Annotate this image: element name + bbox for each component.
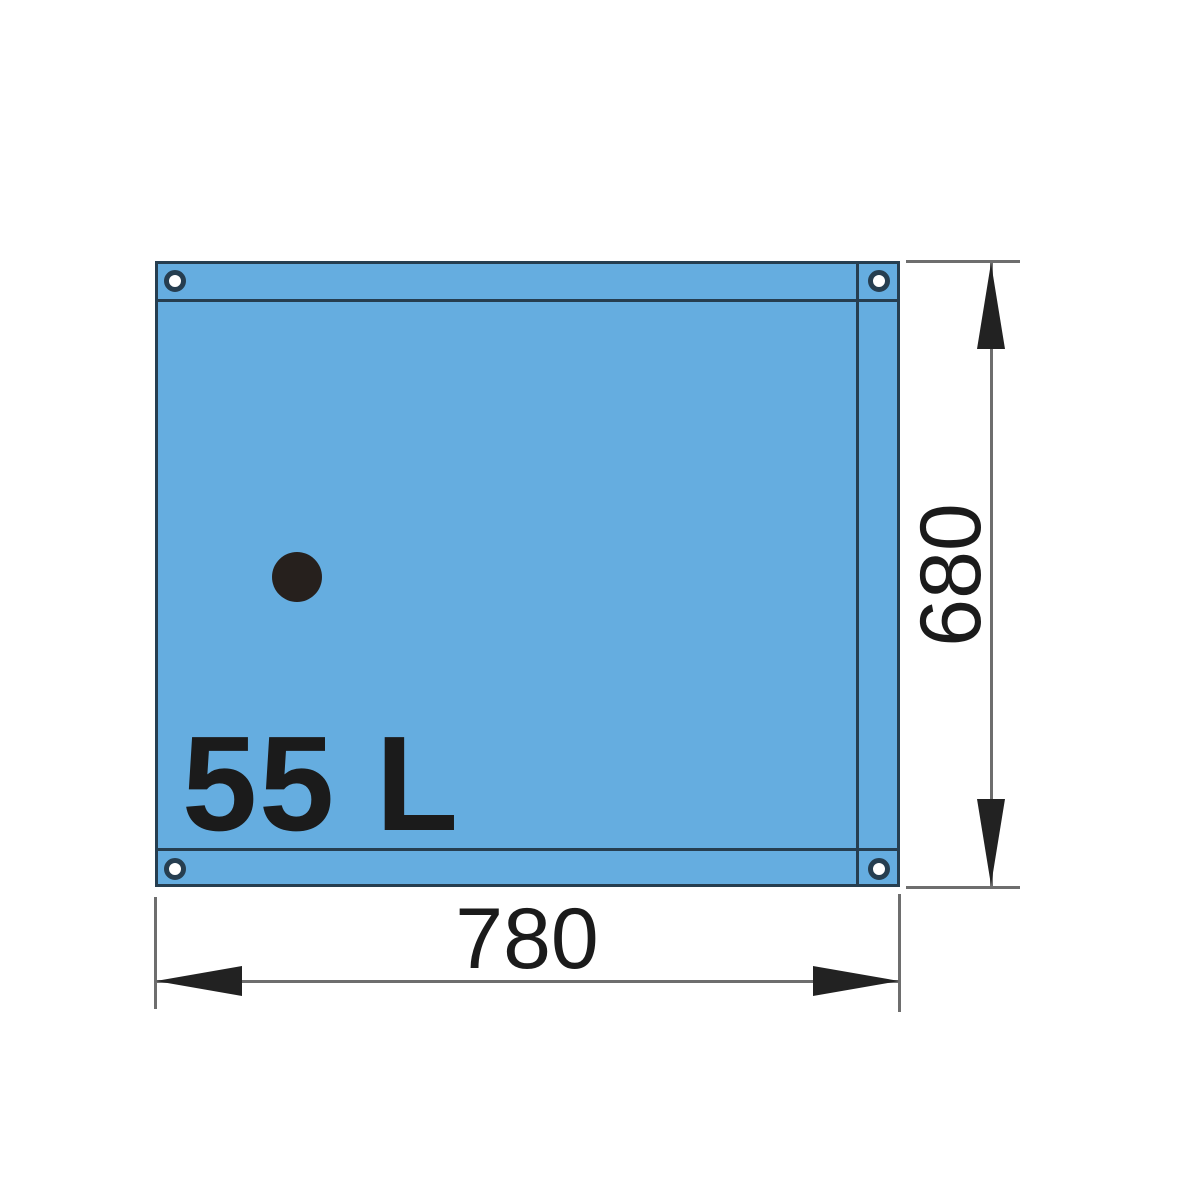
grommet-top-right-icon [868,270,890,292]
arrowhead-up-icon [977,263,1005,349]
arrowhead-down-icon [977,799,1005,885]
grommet-top-left-icon [164,270,186,292]
width-dimension-value: 780 [377,896,677,982]
height-dimension-value: 680 [906,465,996,685]
arrowhead-right-icon [813,966,899,996]
grommet-bottom-left-icon [164,858,186,880]
grommet-bottom-right-icon [868,858,890,880]
arrowhead-left-icon [156,966,242,996]
tank-right-seam-line [856,261,859,887]
tank-dimension-drawing: 55 L 680 780 [0,0,1200,1200]
tank-top-seam-line [155,299,900,302]
fitting-dot-icon [272,552,322,602]
height-extension-line-bottom [906,886,1020,889]
capacity-label: 55 L [182,716,460,851]
